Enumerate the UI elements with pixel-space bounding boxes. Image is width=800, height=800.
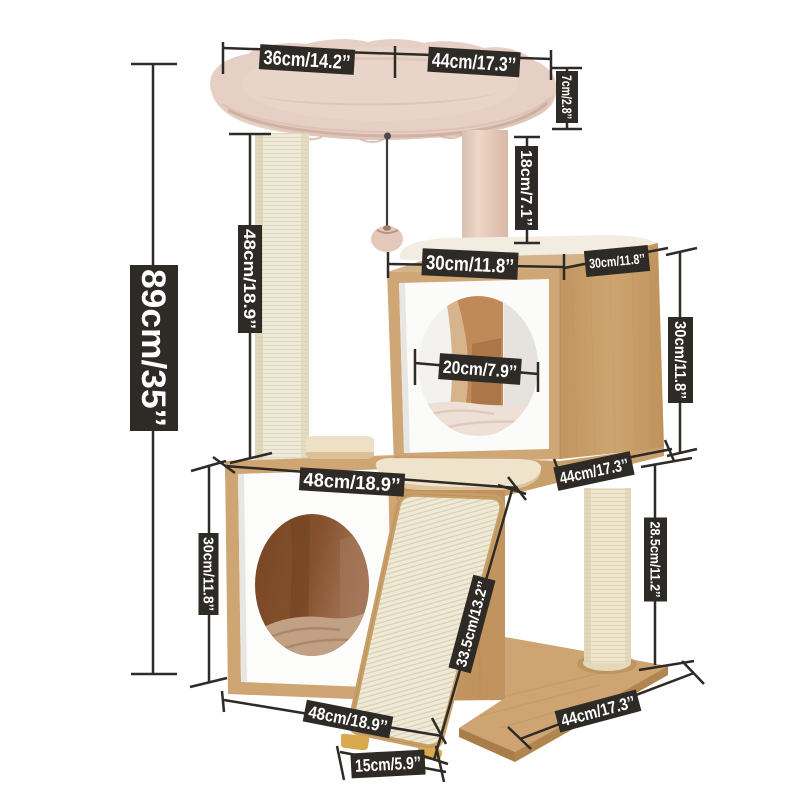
svg-text:30cm/11.8’’: 30cm/11.8’’ [199,537,215,611]
svg-text:7cm/2.8’’: 7cm/2.8’’ [559,75,575,119]
svg-text:18cm/7.1’’: 18cm/7.1’’ [517,150,534,226]
svg-text:48cm/18.9’’: 48cm/18.9’’ [240,229,259,329]
svg-text:28.5cm/11.2’’: 28.5cm/11.2’’ [648,522,664,598]
svg-text:89cm/35’’: 89cm/35’’ [134,269,172,427]
svg-text:30cm/11.8’’: 30cm/11.8’’ [425,252,514,278]
svg-text:30cm/11.8’’: 30cm/11.8’’ [671,321,688,399]
svg-text:15cm/5.9’’: 15cm/5.9’’ [355,752,422,775]
